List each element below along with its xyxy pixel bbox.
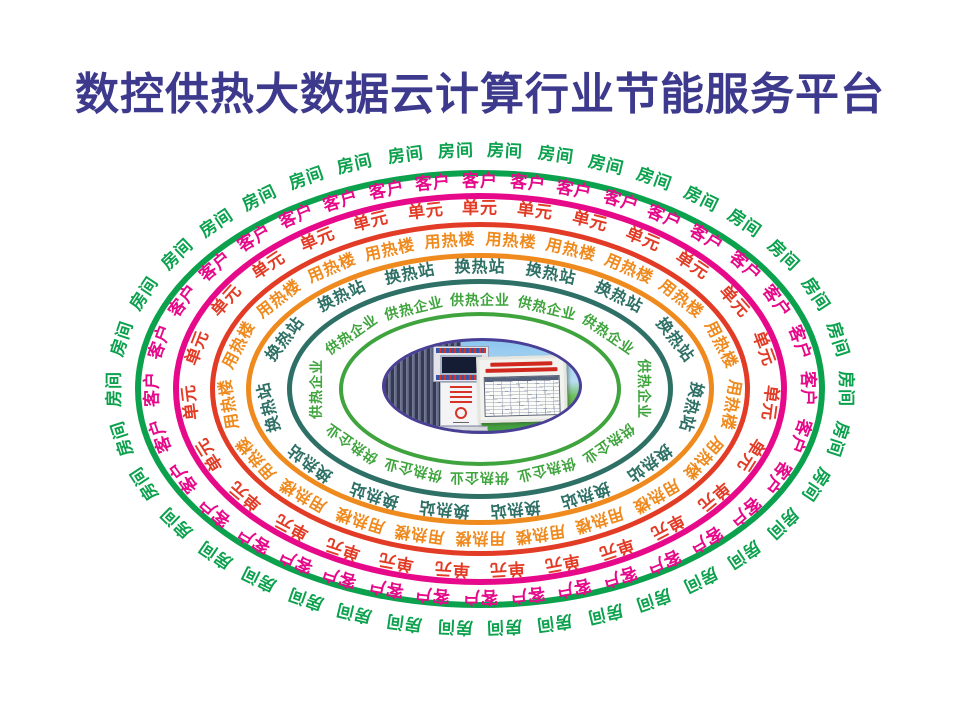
ring-label-room: 房间 — [240, 183, 280, 214]
ring-label-room: 房间 — [128, 463, 162, 502]
ring-label-heating-enterprise: 供热企业 — [450, 294, 510, 308]
ring-label-unit: 单元 — [516, 202, 554, 223]
ring-label-heat-building: 用热楼 — [485, 231, 537, 251]
ring-label-customer: 客户 — [413, 584, 450, 604]
ring-label-unit: 单元 — [488, 559, 525, 578]
ring-label-unit: 单元 — [180, 383, 201, 421]
ring-label-room: 房间 — [680, 563, 720, 594]
ring-label-room: 房间 — [763, 504, 801, 541]
ring-label-customer: 客户 — [414, 174, 451, 194]
ring-label-room: 房间 — [197, 536, 236, 570]
ring-label-room: 房间 — [633, 585, 673, 613]
ring-label-unit: 单元 — [434, 559, 471, 578]
ring-label-room: 房间 — [724, 207, 763, 241]
ring-label-unit: 单元 — [407, 202, 445, 223]
ring-label-room: 房间 — [385, 611, 423, 633]
ring-label-heat-exchange-station: 换热站 — [489, 499, 541, 520]
ring-label-customer: 客户 — [799, 371, 816, 407]
ring-label-customer: 客户 — [462, 588, 498, 605]
ring-label-room: 房间 — [537, 145, 575, 167]
ring-label-room: 房间 — [334, 600, 373, 625]
ring-label-room: 房间 — [535, 611, 573, 633]
ring-label-room: 房间 — [239, 563, 279, 594]
ring-label-room: 房间 — [823, 320, 850, 359]
ring-label-room: 房间 — [798, 275, 832, 314]
ring-label-room: 房间 — [837, 371, 854, 407]
ring-label-customer: 客户 — [510, 174, 547, 194]
ring-label-room: 房间 — [723, 537, 762, 571]
ring-label-room: 房间 — [107, 371, 124, 407]
ring-line-heating-enterprise — [339, 312, 621, 466]
ring-label-room: 房间 — [286, 584, 326, 612]
ring-label-room: 房间 — [798, 464, 832, 503]
ring-label-room: 房间 — [336, 153, 375, 178]
ring-label-room: 房间 — [387, 145, 425, 167]
ring-label-heat-building: 用热楼 — [454, 530, 505, 546]
ring-label-room: 房间 — [287, 165, 327, 193]
ring-label-room: 房间 — [128, 274, 162, 313]
ring-label-room: 房间 — [487, 142, 524, 161]
concentric-rings-diagram: 房间房间房间房间房间房间房间房间房间房间房间房间房间房间房间房间房间房间房间房间… — [0, 0, 960, 720]
ring-label-heat-exchange-station: 换热站 — [454, 259, 505, 275]
ring-label-heating-enterprise: 供热企业 — [310, 359, 324, 419]
ring-label-room: 房间 — [681, 184, 721, 215]
ring-label-heat-exchange-station: 换热站 — [418, 499, 470, 520]
ring-label-room: 房间 — [438, 142, 475, 161]
ring-label-room: 房间 — [634, 166, 674, 194]
ring-label-room: 房间 — [109, 419, 136, 458]
ring-label-room: 房间 — [486, 617, 523, 636]
ring-label-unit: 单元 — [462, 201, 498, 218]
ring-label-customer: 客户 — [462, 174, 498, 191]
ring-label-heating-enterprise: 供热企业 — [636, 359, 650, 419]
ring-label-room: 房间 — [587, 153, 626, 178]
ring-label-customer: 客户 — [508, 584, 545, 604]
ring-label-customer: 客户 — [145, 371, 162, 407]
ring-label-room: 房间 — [823, 420, 851, 460]
ring-label-room: 房间 — [585, 600, 624, 625]
ring-label-room: 房间 — [436, 617, 473, 636]
ring-label-heating-enterprise: 供热企业 — [449, 470, 509, 484]
ring-label-room: 房间 — [110, 319, 138, 359]
ring-label-unit: 单元 — [758, 384, 779, 422]
ring-label-heat-building: 用热楼 — [424, 231, 476, 251]
